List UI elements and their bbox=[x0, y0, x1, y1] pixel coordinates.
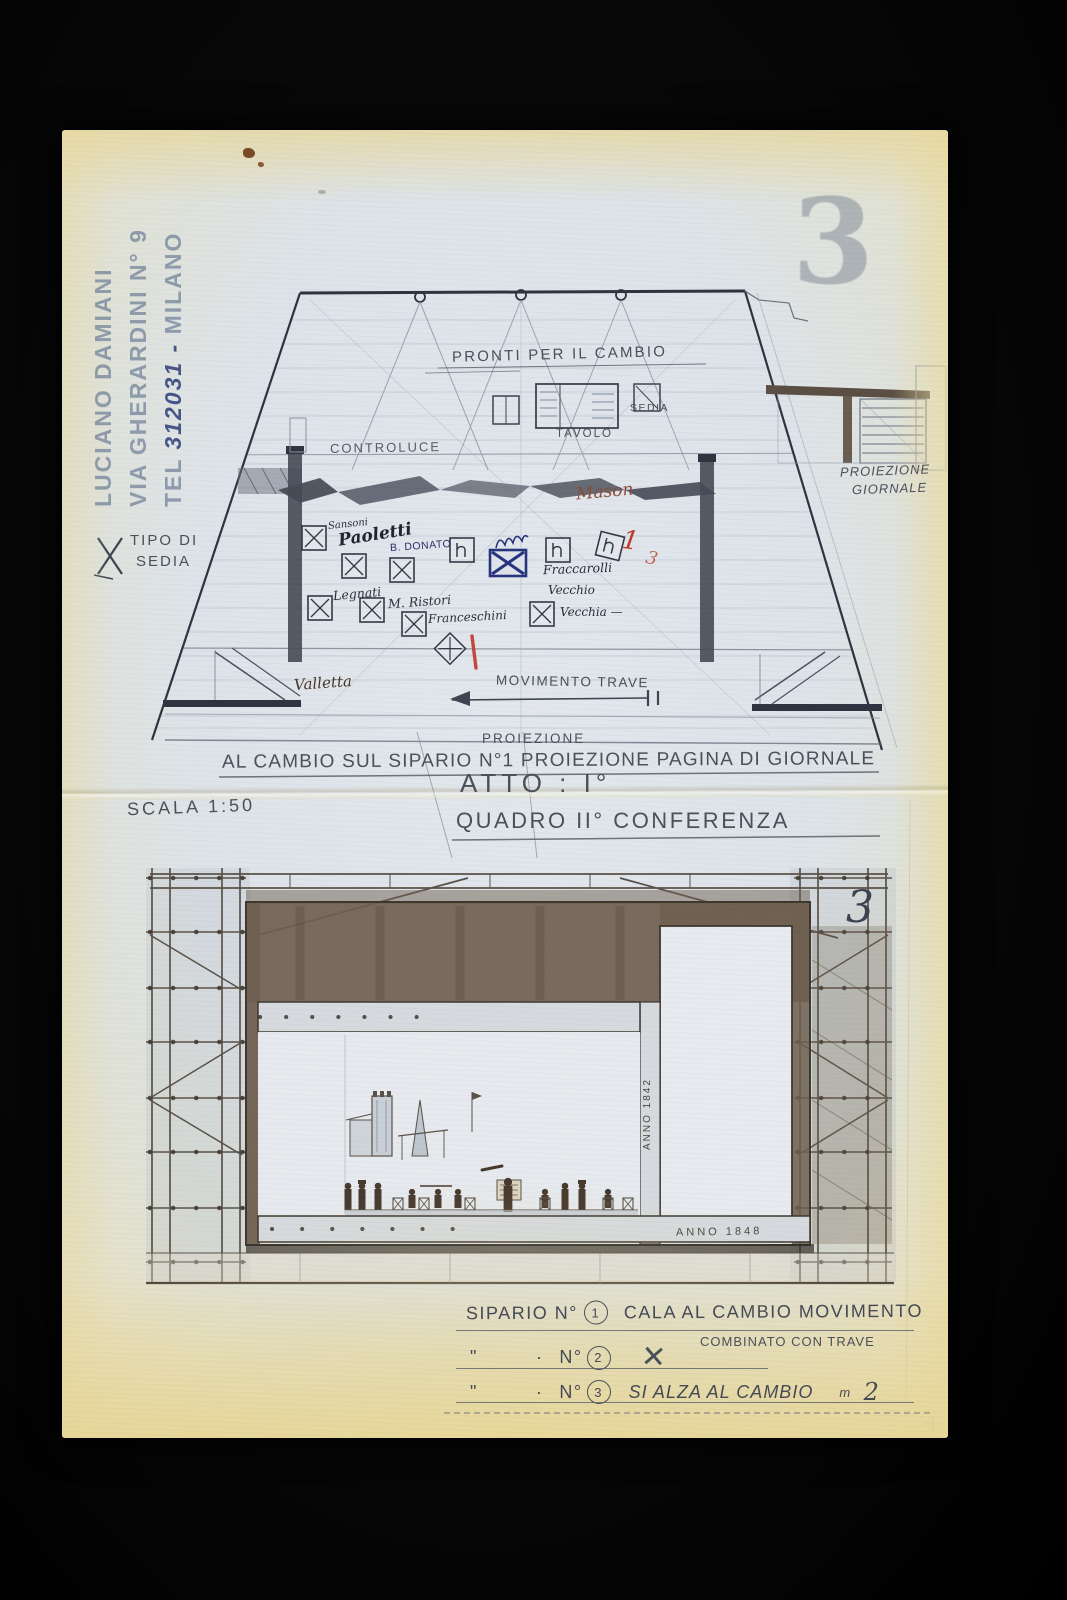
label-movimento-trave: MOVIMENTO TRAVE bbox=[496, 673, 649, 691]
legend-row1-subtext: COMBINATO CON TRAVE bbox=[700, 1334, 875, 1349]
label-tavolo: TAVOLO bbox=[556, 428, 613, 440]
label-proiezione: PROIEZIONE bbox=[482, 731, 585, 746]
scanned-sheet-photo: LUCIANO DAMIANI VIA GHERARDINI N° 9 TEL … bbox=[0, 0, 1067, 1600]
legend-row-1: SIPARIO N° 1 CALA AL CAMBIO MOVIMENTO bbox=[466, 1299, 923, 1325]
legend-row2-x-mark: ✕ bbox=[639, 1339, 668, 1376]
caption-quadro: QUADRO II° CONFERENZA bbox=[456, 808, 790, 834]
paper-speck bbox=[318, 190, 326, 194]
legend-rule-pencil bbox=[444, 1412, 930, 1414]
address-stamp: LUCIANO DAMIANI VIA GHERARDINI N° 9 TEL … bbox=[86, 225, 191, 507]
circled-number-2: 2 bbox=[587, 1346, 611, 1370]
caption-atto: ATTO : I° bbox=[460, 768, 611, 799]
legend-row2-label: N° bbox=[559, 1347, 582, 1368]
stamp-street: VIA GHERARDINI N° 9 bbox=[121, 225, 156, 507]
tape-speck bbox=[258, 162, 264, 167]
stamp-tel-city: MILANO bbox=[160, 232, 186, 343]
legend-row3-ditto: " bbox=[470, 1382, 478, 1403]
circled-number-3: 3 bbox=[587, 1380, 611, 1404]
stamp-tel-number: 312031 - bbox=[160, 343, 186, 450]
legend-row1-label: SIPARIO N° bbox=[466, 1302, 578, 1324]
stamp-tel-prefix: TEL bbox=[160, 450, 186, 507]
legend-row2-ditto: " bbox=[470, 1347, 478, 1368]
label-proiezione-giornale-2: GIORNALE bbox=[852, 480, 928, 498]
legend-row3-text: SI ALZA AL CAMBIO bbox=[629, 1382, 814, 1403]
legend-rule-1 bbox=[456, 1330, 914, 1331]
legend-row2-dot: · bbox=[536, 1347, 544, 1368]
stamp-name: LUCIANO DAMIANI bbox=[86, 225, 121, 507]
label-anno-side: ANNO 1842 bbox=[642, 1078, 653, 1150]
legend-row3-unit: m bbox=[839, 1385, 851, 1400]
circled-number-1: 1 bbox=[584, 1300, 608, 1324]
name-fraccarolli: Fraccarolli bbox=[543, 560, 613, 577]
sheet-number-stamp: 3 bbox=[792, 172, 874, 311]
label-proiezione-giornale-1: PROIEZIONE bbox=[840, 461, 931, 479]
label-sedia: SEDIA bbox=[630, 402, 669, 414]
label-tipo-di-sedia-1: TIPO DI bbox=[130, 532, 198, 549]
legend-rule-3 bbox=[456, 1402, 914, 1403]
label-anno-beam: ANNO 1848 bbox=[676, 1225, 763, 1239]
legend-row1-text: CALA AL CAMBIO MOVIMENTO bbox=[624, 1300, 923, 1323]
tape-speck bbox=[243, 148, 255, 158]
label-controluce: CONTROLUCE bbox=[330, 439, 441, 456]
stamp-phone: TEL 312031 - MILANO bbox=[156, 225, 191, 507]
legend-row3-dot: · bbox=[536, 1382, 544, 1403]
name-vecchia: Vecchia — bbox=[560, 605, 623, 619]
name-vecchio: Vecchio bbox=[548, 583, 595, 597]
sheet-number-note: 3 bbox=[846, 882, 874, 933]
caption-scala: SCALA 1:50 bbox=[127, 795, 256, 820]
legend-rule-2 bbox=[456, 1368, 768, 1369]
label-tipo-di-sedia-2: SEDIA bbox=[136, 553, 191, 570]
legend-row3-label: N° bbox=[559, 1382, 582, 1403]
legend-row-2: " · N° 2 ✕ bbox=[470, 1340, 667, 1375]
